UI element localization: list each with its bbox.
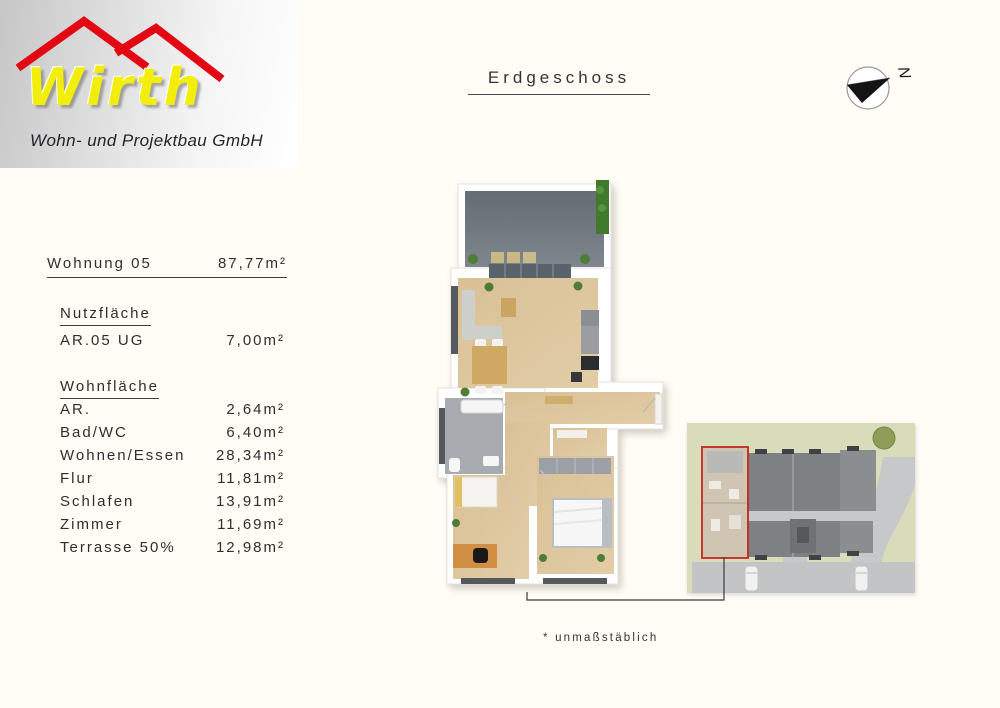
table-row: Flur 11,81m² [60, 470, 285, 487]
row-label: Bad/WC [60, 424, 128, 441]
car-icon [745, 566, 758, 591]
wohnflaeche-heading: Wohnfläche [60, 378, 159, 399]
company-logo: Wirth Wohn- und Projektbau GmbH [0, 0, 298, 168]
desk-chair [473, 548, 488, 563]
compass-north-label: N [894, 65, 913, 80]
toilet [449, 458, 460, 472]
row-label: Schlafen [60, 493, 134, 510]
table-row: Terrasse 50% 12,98m² [60, 539, 285, 556]
row-label: AR.05 UG [60, 332, 144, 349]
room-zimmer [452, 475, 529, 584]
table-row: Wohnen/Essen 28,34m² [60, 447, 285, 464]
row-value: 13,91m² [216, 493, 285, 510]
coffee-table [501, 298, 516, 317]
page-title: Erdgeschoss [468, 68, 650, 95]
scale-footnote: * unmaßstäblich [543, 632, 658, 644]
terrace [465, 180, 609, 267]
window [461, 578, 515, 584]
room-schlafen [537, 456, 614, 584]
table-row: Bad/WC 6,40m² [60, 424, 285, 441]
nutzflaeche-heading: Nutzfläche [60, 305, 151, 326]
plant-icon [468, 254, 478, 264]
plant-icon [461, 388, 470, 397]
sink [483, 456, 499, 466]
sideboard [545, 396, 573, 404]
window [439, 408, 445, 464]
row-value: 6,40m² [226, 424, 285, 441]
row-value: 12,98m² [216, 539, 285, 556]
brand-name: Wirth [26, 58, 276, 118]
row-label: Terrasse 50% [60, 539, 176, 556]
row-label: AR. [60, 401, 91, 418]
siteplan-drawing [687, 423, 915, 593]
brand-subtitle: Wohn- und Projektbau GmbH [30, 131, 263, 151]
plant-icon [452, 519, 460, 527]
plant-icon [539, 554, 547, 562]
compass-icon: N [838, 58, 916, 122]
row-value: 28,34m² [216, 447, 285, 464]
row-label: Flur [60, 470, 94, 487]
car-icon [855, 566, 868, 591]
tree-icon [873, 427, 895, 449]
row-label: Wohnen/Essen [60, 447, 185, 464]
floorplan-drawing [425, 160, 725, 610]
window [451, 286, 458, 354]
entrance-door [655, 394, 662, 424]
table-row: Schlafen 13,91m² [60, 493, 285, 510]
row-value: 2,64m² [226, 401, 285, 418]
building-footprint [702, 446, 876, 560]
row-label: Zimmer [60, 516, 123, 533]
terrace-door-glazing [489, 264, 571, 278]
row-value: 11,81m² [217, 470, 285, 487]
plant-icon [597, 554, 605, 562]
stove [581, 356, 599, 370]
dining-table [472, 346, 507, 384]
unit-05-highlight [702, 447, 748, 558]
row-value: 11,69m² [217, 516, 285, 533]
table-row: AR.05 UG 7,00m² [60, 332, 285, 349]
plant-icon [574, 282, 583, 291]
plant-icon [580, 254, 590, 264]
page: Wirth Wohn- und Projektbau GmbH Erdgesch… [0, 0, 1000, 708]
plant-icon [485, 283, 494, 292]
parking-strip [692, 562, 915, 593]
apartment-name: Wohnung 05 [47, 255, 152, 272]
row-value: 7,00m² [226, 332, 285, 349]
table-row: Zimmer 11,69m² [60, 516, 285, 533]
apartment-title-row: Wohnung 05 87,77m² [47, 255, 287, 278]
table-row: AR. 2,64m² [60, 401, 285, 418]
apartment-total-area: 87,77m² [218, 255, 287, 272]
bathtub [461, 400, 503, 413]
window [543, 578, 607, 584]
